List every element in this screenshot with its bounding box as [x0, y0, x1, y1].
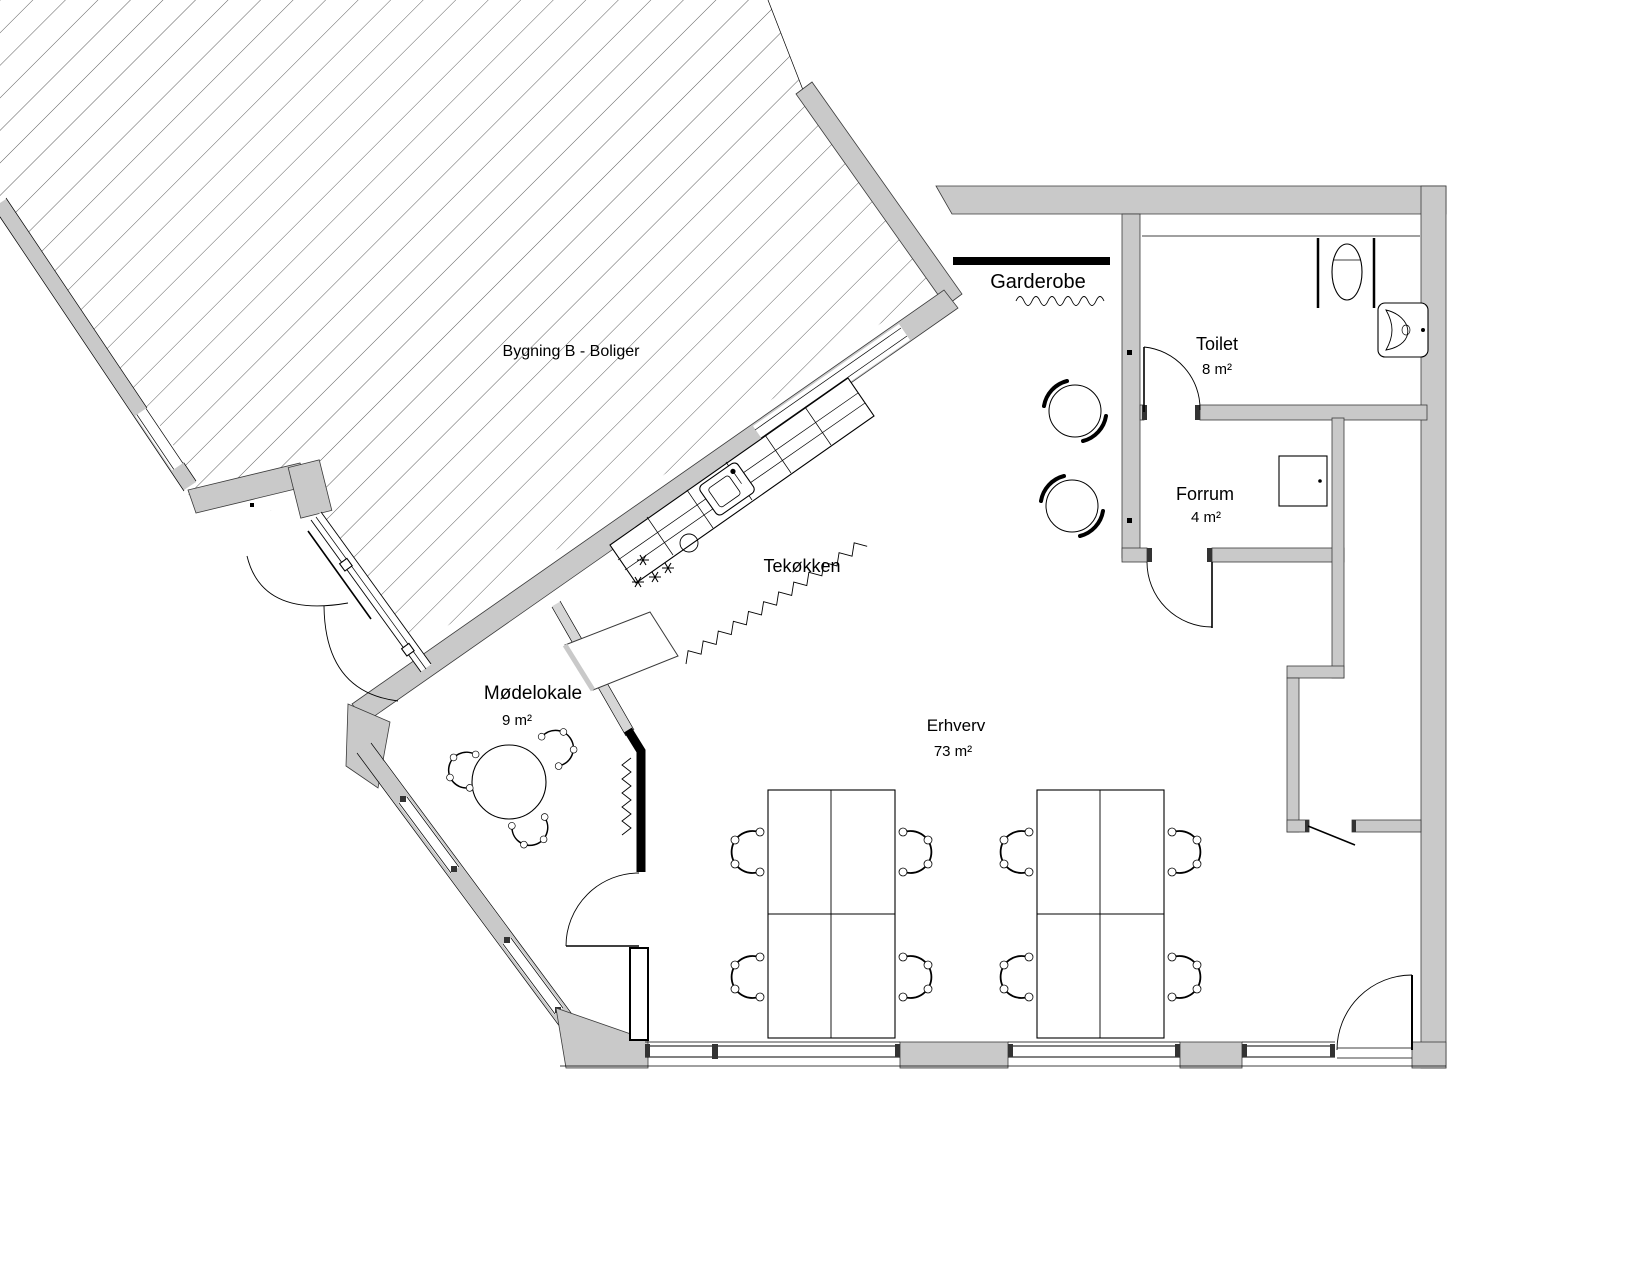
erhverv-label: Erhverv	[927, 716, 986, 735]
modelokale-area-label: 9 m²	[502, 712, 532, 729]
main-vertical-wall	[1122, 214, 1140, 558]
erhverv-area-label: 73 m²	[934, 743, 972, 760]
closet-bottom-wall	[1352, 820, 1421, 832]
forrum-bottom-wall	[1212, 548, 1344, 562]
forrum-cabinet	[1279, 456, 1327, 506]
washbasin-icon	[1378, 303, 1428, 357]
coat-rail-icon	[953, 257, 1110, 265]
forrum-label: Forrum	[1176, 484, 1234, 504]
building-b-label: Bygning B - Boliger	[503, 343, 641, 360]
wc-icon	[1332, 244, 1362, 300]
closet-jog-wall	[1287, 666, 1344, 678]
forrum-right-wall	[1332, 418, 1344, 678]
floor-plan: Bygning B - Boliger Garderobe Toilet 8 m…	[0, 0, 1630, 1268]
top-wall	[936, 186, 1446, 214]
toilet-area-label: 8 m²	[1202, 361, 1232, 378]
garderobe-label: Garderobe	[990, 271, 1086, 293]
modelokale-label: Mødelokale	[484, 683, 582, 704]
closet-left-wall	[1287, 678, 1299, 832]
toilet-forrum-wall	[1200, 405, 1427, 420]
floor-plan-canvas: Bygning B - Boliger Garderobe Toilet 8 m…	[0, 0, 1630, 1268]
forrum-area-label: 4 m²	[1191, 509, 1221, 526]
toilet-label: Toilet	[1196, 334, 1238, 354]
modelokale-glass-partition	[630, 948, 648, 1040]
tekokken-label: Tekøkken	[763, 556, 840, 576]
